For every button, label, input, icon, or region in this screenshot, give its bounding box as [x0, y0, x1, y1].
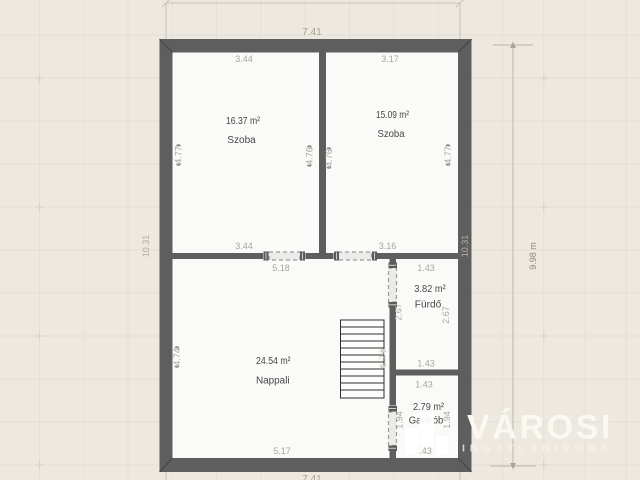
svg-text:4.77: 4.77 [443, 146, 453, 164]
svg-text:3.44: 3.44 [235, 54, 253, 64]
svg-text:1.43: 1.43 [415, 380, 433, 390]
svg-text:4.76: 4.76 [305, 147, 315, 165]
svg-text:7.41: 7.41 [302, 27, 322, 38]
svg-text:3.17: 3.17 [381, 54, 399, 64]
svg-text:Szoba: Szoba [378, 129, 405, 140]
svg-text:Szoba: Szoba [227, 135, 256, 146]
svg-text:9.98 m: 9.98 m [528, 242, 538, 270]
svg-text:4.74: 4.74 [172, 348, 182, 366]
svg-text:24.54 m²: 24.54 m² [256, 356, 291, 367]
svg-text:3.44: 3.44 [235, 241, 253, 251]
svg-text:7.41: 7.41 [302, 474, 322, 480]
svg-text:2.67: 2.67 [441, 306, 451, 324]
svg-text:1.94: 1.94 [395, 411, 405, 429]
svg-text:4.77: 4.77 [174, 146, 184, 164]
svg-text:10.31: 10.31 [460, 235, 470, 258]
svg-text:4.76: 4.76 [324, 149, 334, 167]
svg-text:2.79 m²: 2.79 m² [413, 402, 445, 413]
svg-text:5.17: 5.17 [273, 446, 291, 456]
svg-text:16.37 m²: 16.37 m² [226, 116, 261, 127]
svg-text:1.94: 1.94 [442, 411, 452, 429]
svg-text:Nappali: Nappali [256, 376, 290, 387]
svg-text:5.18: 5.18 [272, 263, 290, 273]
svg-text:1.43: 1.43 [417, 263, 435, 273]
svg-text:10.31: 10.31 [141, 235, 151, 258]
svg-text:2.67: 2.67 [394, 303, 404, 321]
svg-text:Fürdő: Fürdő [415, 300, 442, 311]
svg-text:15.09 m²: 15.09 m² [376, 110, 410, 121]
svg-text:3.16: 3.16 [379, 241, 397, 251]
svg-text:1.74: 1.74 [378, 350, 388, 368]
svg-text:VÁROSI: VÁROSI [467, 409, 611, 447]
svg-text:1.43: 1.43 [417, 359, 435, 369]
svg-text:3.82 m²: 3.82 m² [414, 284, 446, 295]
